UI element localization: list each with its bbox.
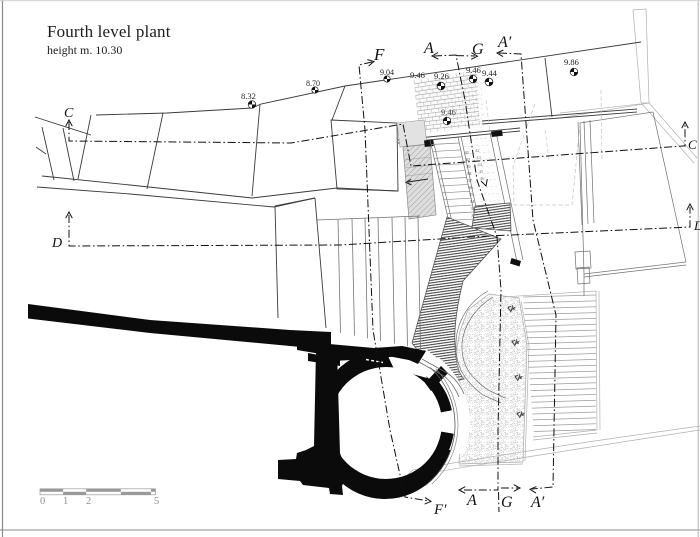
svg-text:42: 42 <box>475 148 480 153</box>
svg-text:height m. 10.30: height m. 10.30 <box>47 43 122 57</box>
svg-text:8.32: 8.32 <box>241 91 256 101</box>
svg-text:39: 39 <box>466 164 471 169</box>
svg-text:43: 43 <box>476 155 481 160</box>
svg-text:44: 44 <box>477 162 482 167</box>
svg-text:A: A <box>423 40 434 57</box>
svg-text:9.86: 9.86 <box>564 57 579 67</box>
svg-text:34: 34 <box>470 199 475 204</box>
svg-text:C: C <box>64 106 74 121</box>
svg-text:D: D <box>693 218 700 233</box>
svg-text:C: C <box>688 137 697 152</box>
svg-text:F: F <box>373 45 385 64</box>
svg-text:D: D <box>51 236 62 251</box>
svg-text:A′: A′ <box>497 34 512 51</box>
svg-text:2: 2 <box>86 496 91 507</box>
svg-text:35: 35 <box>469 192 474 197</box>
svg-text:41: 41 <box>465 150 470 155</box>
svg-text:9.46: 9.46 <box>466 65 481 75</box>
svg-text:9.46: 9.46 <box>410 70 425 80</box>
svg-text:45: 45 <box>479 169 484 174</box>
svg-text:0: 0 <box>40 496 45 507</box>
svg-text:38: 38 <box>467 171 472 176</box>
svg-text:G: G <box>472 41 484 58</box>
svg-text:A: A <box>466 492 477 509</box>
svg-text:40: 40 <box>465 157 470 162</box>
svg-text:G: G <box>501 494 513 511</box>
svg-text:F′: F′ <box>433 502 447 518</box>
svg-text:1: 1 <box>63 496 68 507</box>
svg-text:A′: A′ <box>530 494 545 511</box>
svg-text:9.46: 9.46 <box>441 107 456 117</box>
svg-text:8.70: 8.70 <box>306 79 320 88</box>
svg-text:9.26: 9.26 <box>434 71 449 81</box>
svg-text:5: 5 <box>154 496 159 507</box>
svg-text:36: 36 <box>468 185 473 190</box>
svg-text:Fourth level plant: Fourth level plant <box>47 22 171 41</box>
svg-text:46: 46 <box>480 176 485 181</box>
svg-text:9.44: 9.44 <box>482 68 498 78</box>
svg-text:37: 37 <box>468 178 473 183</box>
